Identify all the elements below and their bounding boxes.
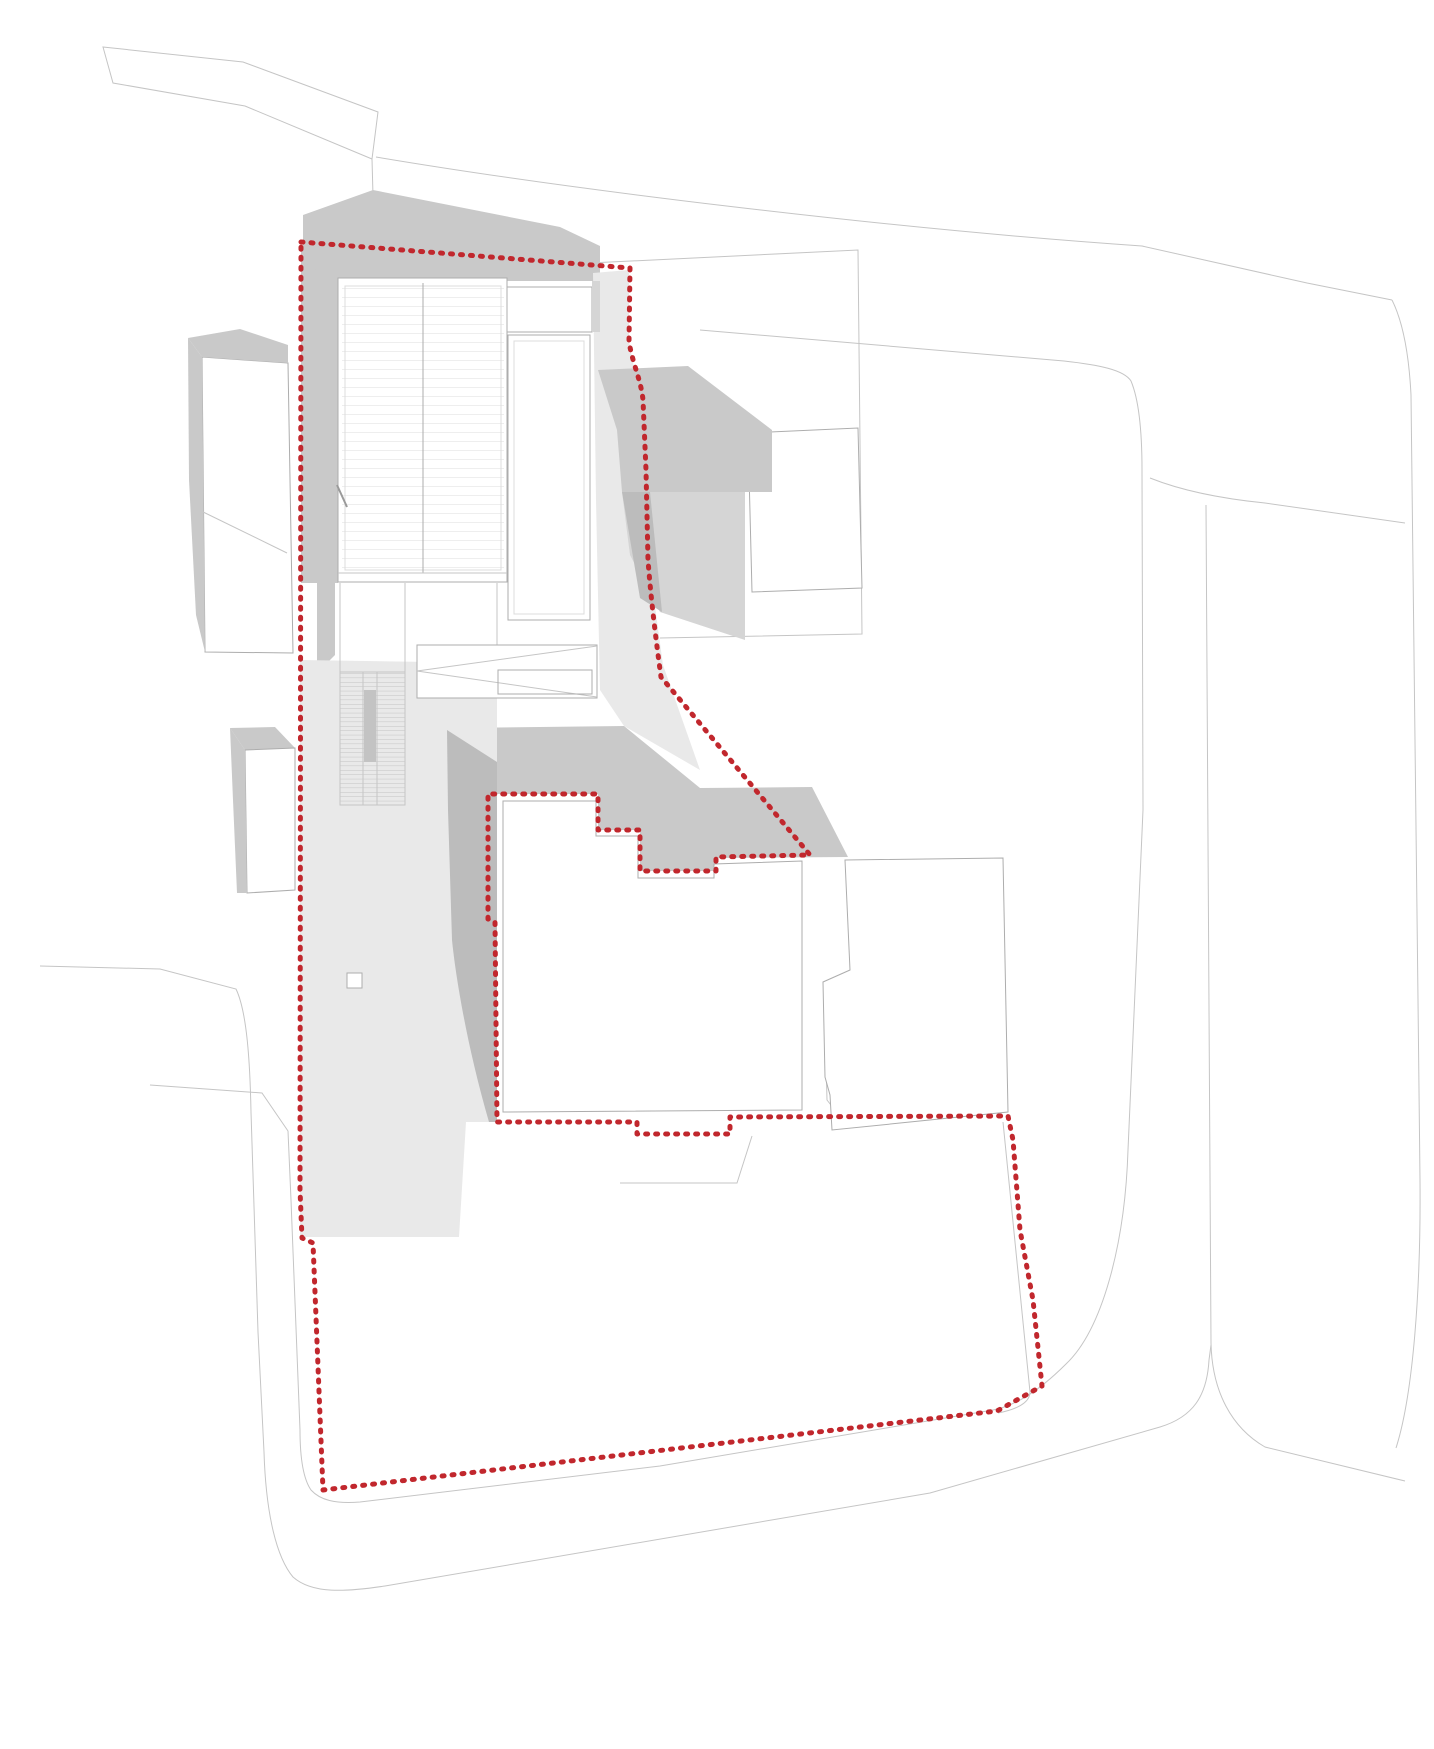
road-top-strip — [103, 47, 378, 159]
shadow-east-block — [598, 366, 772, 492]
shadow-west-strip — [301, 245, 338, 583]
east-wing-seam — [592, 281, 600, 332]
stair-landing — [364, 690, 376, 762]
plan-layers — [40, 47, 1420, 1590]
shadow-north-peak — [303, 190, 600, 281]
plaza-kiosk — [347, 973, 362, 988]
road-east-second-edge — [1206, 505, 1405, 1481]
road-east-outer-edge — [1392, 300, 1420, 1448]
road-east-branch — [1150, 478, 1405, 523]
shadow-west-wedge — [317, 583, 335, 663]
parcel-stub-south-a — [620, 1136, 752, 1183]
east-wing-body — [508, 335, 590, 620]
building-b-face — [245, 748, 295, 893]
site-plan-canvas — [0, 0, 1434, 1749]
site-plan-page — [0, 0, 1434, 1749]
building-a-face — [202, 357, 293, 653]
building-b-left-shadow — [230, 728, 247, 893]
east-wing-top — [507, 287, 592, 332]
canopy-plate — [417, 645, 597, 698]
house-inner-east — [823, 858, 1008, 1130]
